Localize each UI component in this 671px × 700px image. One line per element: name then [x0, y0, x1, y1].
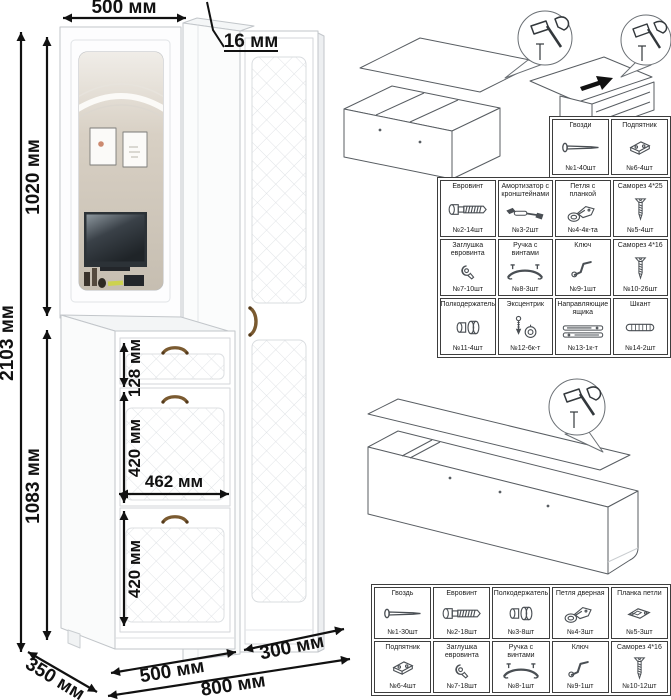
footplate-icon: [390, 652, 416, 683]
parts-cell: Петля с планкой №4-4к-та: [555, 180, 611, 237]
dim-drawer-height-label: 128 мм: [125, 339, 144, 397]
part-name: Заглушка евровинта: [442, 242, 494, 258]
nail-icon: [561, 130, 601, 165]
parts-cell: Петля дверная №4-3шт: [552, 587, 609, 639]
part-qty: №3-8шт: [508, 629, 534, 636]
handle-icon: [505, 258, 545, 286]
part-name: Планка петли: [617, 590, 661, 598]
part-name: Петля дверная: [556, 590, 605, 598]
parts-cell: Ручка с винтами №8-3шт: [498, 239, 554, 296]
part-name: Евровинт: [452, 183, 483, 191]
part-qty: №12-6к-т: [510, 345, 540, 352]
part-qty: №8-1шт: [508, 683, 534, 690]
door-quilt-panel-bottom: [252, 340, 306, 602]
dim-total-height-label: 2103 мм: [0, 305, 18, 381]
slides-icon: [561, 317, 605, 345]
parts-cell: Подпятник №6-4шт: [374, 641, 431, 693]
part-name: Гвозди: [570, 122, 592, 130]
part-qty: №4-3шт: [567, 629, 593, 636]
hinge-icon: [562, 598, 598, 629]
part-name: Саморез 4*16: [617, 644, 662, 652]
assembly-diagram-page: 2103 мм 1020 мм 1083 мм 500 мм 16 мм 128…: [0, 0, 671, 700]
dim-flap-bottom-label: 420 мм: [125, 540, 144, 598]
part-name: Ключ: [572, 644, 589, 652]
part-name: Подпятник: [385, 644, 419, 652]
hinge-icon: [565, 199, 601, 227]
part-name: Саморез 4*16: [618, 242, 663, 250]
part-name: Заглушка евровинта: [435, 644, 488, 660]
eurobolt-icon: [447, 191, 489, 227]
assembly-step-long-panel: [368, 379, 638, 574]
plug-icon: [460, 258, 475, 286]
hingeplate-icon: [624, 598, 654, 629]
part-qty: №2-14шт: [453, 227, 483, 234]
parts-cell: Направляющие ящика №13-1к-т: [555, 298, 611, 355]
parts-cell: Ключ №9-1шт: [555, 239, 611, 296]
part-qty: №2-18шт: [447, 629, 477, 636]
nail-icon: [383, 598, 423, 629]
part-qty: №4-4к-та: [568, 227, 598, 234]
handle-icon: [501, 660, 541, 683]
part-qty: №6-4шт: [626, 165, 652, 172]
parts-cell: Ключ №9-1шт: [552, 641, 609, 693]
key-icon: [570, 250, 596, 286]
parts-cell: Планка петли №5-3шт: [611, 587, 668, 639]
dim-inner-width-label: 462 мм: [145, 472, 203, 491]
screw-icon: [633, 652, 646, 683]
parts-cell: Саморез 4*16 №10-12шт: [611, 641, 668, 693]
parts-cell: Евровинт №2-14шт: [440, 180, 496, 237]
shelfpin-icon: [453, 309, 483, 345]
screw-icon: [634, 250, 647, 286]
part-name: Ручка с винтами: [494, 644, 547, 660]
part-qty: №5-3шт: [626, 629, 652, 636]
part-qty: №1-30шт: [387, 629, 417, 636]
part-qty: №11-4шт: [453, 345, 483, 352]
parts-cell: Гвозди №1-40шт: [552, 119, 609, 175]
part-name: Евровинт: [446, 590, 477, 598]
door-quilt-panel-top: [252, 57, 306, 303]
footplate-icon: [627, 130, 653, 165]
mirror: [73, 52, 169, 290]
part-name: Полкодержатель: [440, 301, 495, 309]
part-name: Полкодержатель: [494, 590, 549, 598]
parts-cell: Полкодержатель №11-4шт: [440, 298, 496, 355]
part-qty: №9-1шт: [570, 286, 596, 293]
part-qty: №10-26шт: [623, 286, 657, 293]
part-qty: №7-10шт: [453, 286, 483, 293]
part-qty: №14-2шт: [625, 345, 655, 352]
parts-cell: Саморез 4*25 №5-4шт: [613, 180, 669, 237]
part-name: Шкант: [630, 301, 651, 309]
dim-panel-thickness-label: 16 мм: [224, 31, 279, 52]
part-qty: №13-1к-т: [568, 345, 598, 352]
part-qty: №10-12шт: [622, 683, 656, 690]
tall-door: [245, 38, 313, 644]
part-name: Ключ: [574, 242, 591, 250]
hardware-table-main: Евровинт №2-14шт Амортизатор с кронштейн…: [437, 177, 671, 358]
parts-cell: Заглушка евровинта №7-10шт: [440, 239, 496, 296]
wardrobe-drawing: [60, 18, 324, 661]
parts-cell: Гвоздь №1-30шт: [374, 587, 431, 639]
part-qty: №3-2шт: [512, 227, 538, 234]
parts-cell: Шкант №14-2шт: [613, 298, 669, 355]
mirror-tv: [84, 212, 147, 271]
parts-cell: Ручка с винтами №8-1шт: [492, 641, 549, 693]
part-name: Направляющие ящика: [557, 301, 609, 317]
cam-icon: [511, 309, 539, 345]
mirror-section: [60, 27, 181, 318]
parts-cell: Эксцентрик №12-6к-т: [498, 298, 554, 355]
screw-icon: [634, 191, 647, 227]
hardware-table-bottom: Гвоздь №1-30шт Евровинт №2-18шт Полкодер…: [371, 584, 671, 696]
part-name: Эксцентрик: [507, 301, 544, 309]
key-icon: [567, 652, 593, 683]
part-qty: №7-18шт: [447, 683, 477, 690]
part-qty: №5-4шт: [627, 227, 653, 234]
parts-cell: Полкодержатель №3-8шт: [492, 587, 549, 639]
part-name: Амортизатор с кронштейнами: [500, 183, 552, 199]
parts-cell: Евровинт №2-18шт: [433, 587, 490, 639]
parts-cell: Заглушка евровинта №7-18шт: [433, 641, 490, 693]
plug-icon: [454, 660, 469, 683]
dowel-icon: [623, 309, 657, 345]
part-name: Петля с планкой: [557, 183, 609, 199]
parts-cell: Подпятник №6-4шт: [611, 119, 668, 175]
part-name: Гвоздь: [392, 590, 414, 598]
part-name: Ручка с винтами: [500, 242, 552, 258]
part-name: Подпятник: [622, 122, 656, 130]
part-qty: №9-1шт: [567, 683, 593, 690]
dim-flap-top-label: 420 мм: [125, 419, 144, 477]
hardware-table-top: Гвозди №1-40шт Подпятник №6-4шт: [549, 116, 671, 178]
shelfpin-icon: [506, 598, 536, 629]
assembly-step-back-panel: [344, 11, 572, 179]
parts-cell: Амортизатор с кронштейнами №3-2шт: [498, 180, 554, 237]
part-qty: №6-4шт: [389, 683, 415, 690]
dim-lower-height-label: 1083 мм: [23, 448, 44, 524]
parts-cell: Саморез 4*16 №10-26шт: [613, 239, 669, 296]
dim-upper-height-label: 1020 мм: [23, 139, 44, 215]
dim-total-width-label: 800 мм: [199, 670, 267, 700]
dim-top-width-label: 500 мм: [91, 0, 156, 18]
dim-depth-label: 350 мм: [22, 654, 89, 700]
damper-icon: [503, 199, 547, 227]
part-qty: №8-3шт: [512, 286, 538, 293]
part-qty: №1-40шт: [565, 165, 595, 172]
part-name: Саморез 4*25: [618, 183, 663, 191]
eurobolt-icon: [441, 598, 483, 629]
